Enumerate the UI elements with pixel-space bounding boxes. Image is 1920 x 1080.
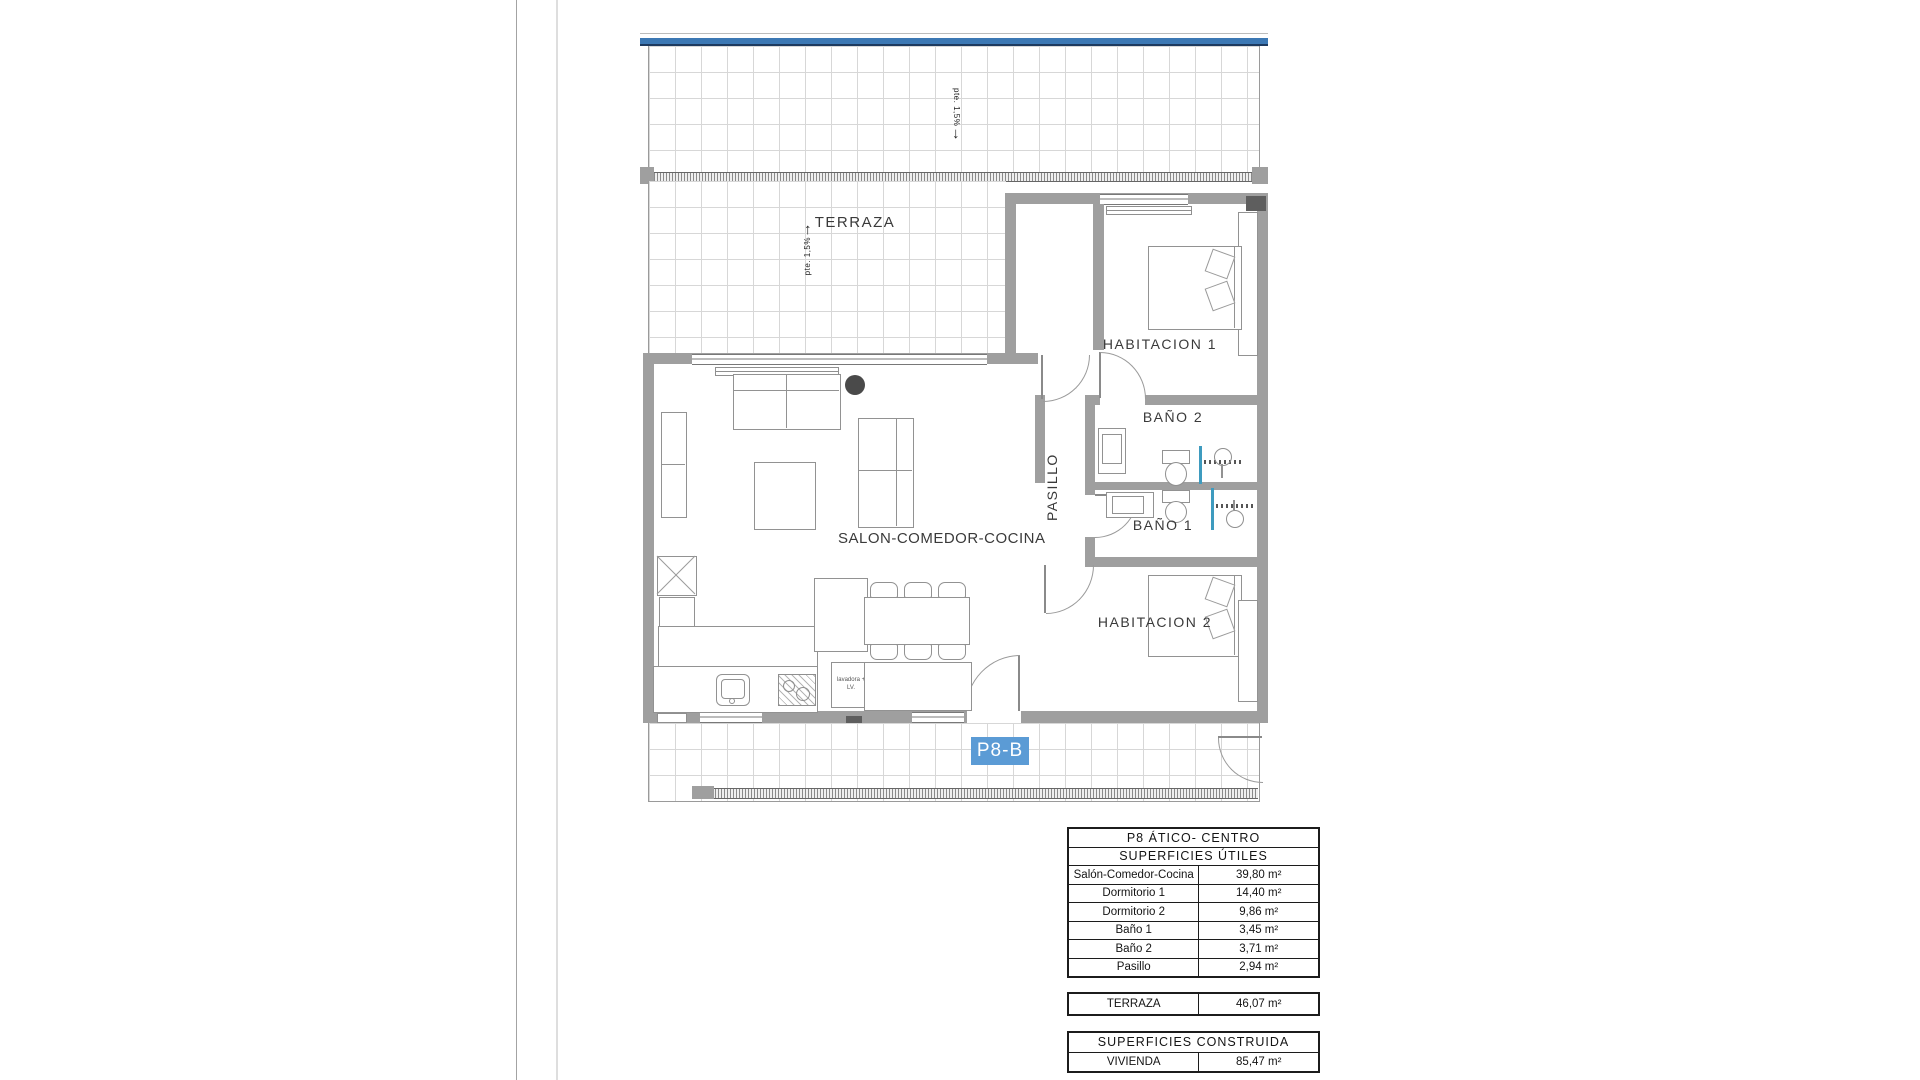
wall-segment: [1005, 193, 1016, 364]
sheet-border-line: [556, 0, 558, 1080]
bath1-shower-head: [1226, 510, 1244, 528]
kitchen-window: [700, 712, 762, 723]
entrance-opening: [967, 711, 1021, 723]
bath2-toilet-bowl: [1165, 462, 1187, 486]
sink-drain: [729, 698, 735, 704]
kitchen-sink-basin: [721, 679, 745, 699]
row-label: Baño 1: [1069, 922, 1199, 940]
row-value: 3,45 m²: [1199, 922, 1318, 940]
drawing-sheet: pte. 1,5% ↓ TERRAZA ↑ pte. 1,5%: [0, 0, 1920, 1080]
dining-table: [864, 597, 970, 645]
sideboard: [661, 412, 687, 518]
kitchen-counter: [658, 626, 818, 668]
table-row: TERRAZA 46,07 m²: [1069, 994, 1318, 1014]
bedroom2-door-arc: [1046, 565, 1094, 614]
salon-label: SALON-COMEDOR-COCINA: [838, 530, 1043, 547]
row-value: 85,47 m²: [1199, 1053, 1318, 1072]
terrace-railing: [712, 788, 1258, 799]
row-label: Pasillo: [1069, 959, 1199, 977]
slope-annotation-terraza: ↑ pte. 1,5%: [798, 222, 818, 302]
bedroom1-door-arc: [1100, 352, 1146, 399]
row-value: 2,94 m²: [1199, 959, 1318, 977]
hall-door-arc: [1043, 355, 1090, 402]
dining-window: [912, 712, 964, 723]
wall-segment: [692, 786, 714, 799]
wall-segment: [1093, 204, 1104, 350]
table-title: P8 ÁTICO- CENTRO: [1069, 829, 1318, 847]
table-subtitle: SUPERFICIES ÚTILES: [1069, 847, 1318, 866]
row-value: 14,40 m²: [1199, 885, 1318, 903]
sideboard-line: [661, 464, 685, 465]
superficies-utiles-table: P8 ÁTICO- CENTRO SUPERFICIES ÚTILES Saló…: [1067, 827, 1320, 978]
door-opening: [1085, 495, 1095, 537]
kitchen-peninsula: [864, 662, 972, 711]
unit-tag: P8-B: [971, 737, 1029, 765]
row-label: Dormitorio 1: [1069, 885, 1199, 903]
habitacion1-label: HABITACION 1: [1090, 336, 1230, 352]
bath1-shower-rail: [1216, 504, 1256, 508]
cooktop-burner: [796, 687, 810, 701]
structural-column: [1246, 196, 1266, 211]
sofa-line: [786, 374, 787, 428]
rug: [754, 462, 816, 530]
cooktop-burner: [783, 680, 795, 692]
wardrobe: [1238, 600, 1258, 702]
pasillo-label: PASILLO: [1044, 440, 1060, 535]
row-value: 9,86 m²: [1199, 903, 1318, 921]
habitacion2-label: HABITACION 2: [1080, 614, 1230, 630]
table-row: Dormitorio 1 14,40 m²: [1069, 884, 1318, 903]
row-value: 39,80 m²: [1199, 866, 1318, 884]
dining-chair: [904, 582, 932, 598]
slope-annotation-top-text: pte. 1,5%: [952, 88, 960, 126]
arrow-down-icon: ↓: [952, 126, 960, 141]
terrace-edge-line: [640, 33, 1268, 34]
living-room-window: [692, 354, 987, 365]
row-value: 46,07 m²: [1199, 994, 1318, 1014]
kitchen-island: [814, 578, 868, 652]
terraza-tiles: [648, 181, 1006, 353]
row-label: VIVIENDA: [1069, 1053, 1199, 1072]
bath1-shower-stem: [1233, 500, 1235, 510]
row-label: TERRAZA: [1069, 994, 1199, 1014]
chaise-sofa-line: [896, 418, 897, 526]
window-opening: [657, 713, 687, 723]
row-value: 3,71 m²: [1199, 940, 1318, 958]
radiator: [1106, 206, 1192, 215]
dining-chair: [938, 582, 966, 598]
bath2-sink: [1102, 434, 1122, 464]
sofa: [733, 374, 841, 430]
row-label: Salón-Comedor-Cocina: [1069, 866, 1199, 884]
cabinet: [659, 597, 695, 628]
bath2-shower-head: [1214, 448, 1232, 466]
wall-segment: [1252, 167, 1268, 184]
terraza-table: TERRAZA 46,07 m²: [1067, 992, 1320, 1016]
dining-chair: [870, 644, 898, 660]
chaise-sofa: [858, 418, 914, 528]
entrance-door-arc: [965, 655, 1020, 712]
row-label: Baño 2: [1069, 940, 1199, 958]
dining-chair: [904, 644, 932, 660]
sofa-line: [733, 390, 839, 391]
wall-segment: [1085, 557, 1268, 567]
table-row: Pasillo 2,94 m²: [1069, 958, 1318, 977]
bath1-shower-screen: [1211, 488, 1214, 530]
wall-segment: [1257, 193, 1268, 723]
bath2-shower-screen: [1199, 446, 1202, 484]
table-title: SUPERFICIES CONSTRUIDA: [1069, 1033, 1318, 1052]
table-row: Baño 1 3,45 m²: [1069, 921, 1318, 940]
bath2-shower-stem: [1221, 464, 1223, 478]
slope-annotation-terraza-text: pte. 1,5%: [804, 237, 812, 275]
row-label: Dormitorio 2: [1069, 903, 1199, 921]
bano2-label: BAÑO 2: [1128, 409, 1218, 425]
table-row: Dormitorio 2 9,86 m²: [1069, 902, 1318, 921]
bedroom1-window: [1100, 194, 1188, 205]
shaft-x-icon: [657, 556, 695, 594]
chaise-sofa-line: [858, 470, 912, 471]
table-row: Baño 2 3,71 m²: [1069, 939, 1318, 958]
slope-annotation-top: pte. 1,5% ↓: [946, 88, 966, 170]
sheet-border-line: [516, 0, 517, 1080]
dining-chair: [938, 644, 966, 660]
table-row: Salón-Comedor-Cocina 39,80 m²: [1069, 865, 1318, 884]
superficies-construida-table: SUPERFICIES CONSTRUIDA VIVIENDA 85,47 m²: [1067, 1031, 1320, 1073]
structural-column-round: [845, 375, 865, 395]
arrow-up-icon: ↑: [804, 222, 812, 237]
bano1-label: BAÑO 1: [1118, 517, 1208, 533]
bath1-sink: [1112, 496, 1144, 514]
dining-chair: [870, 582, 898, 598]
table-row: VIVIENDA 85,47 m²: [1069, 1052, 1318, 1072]
